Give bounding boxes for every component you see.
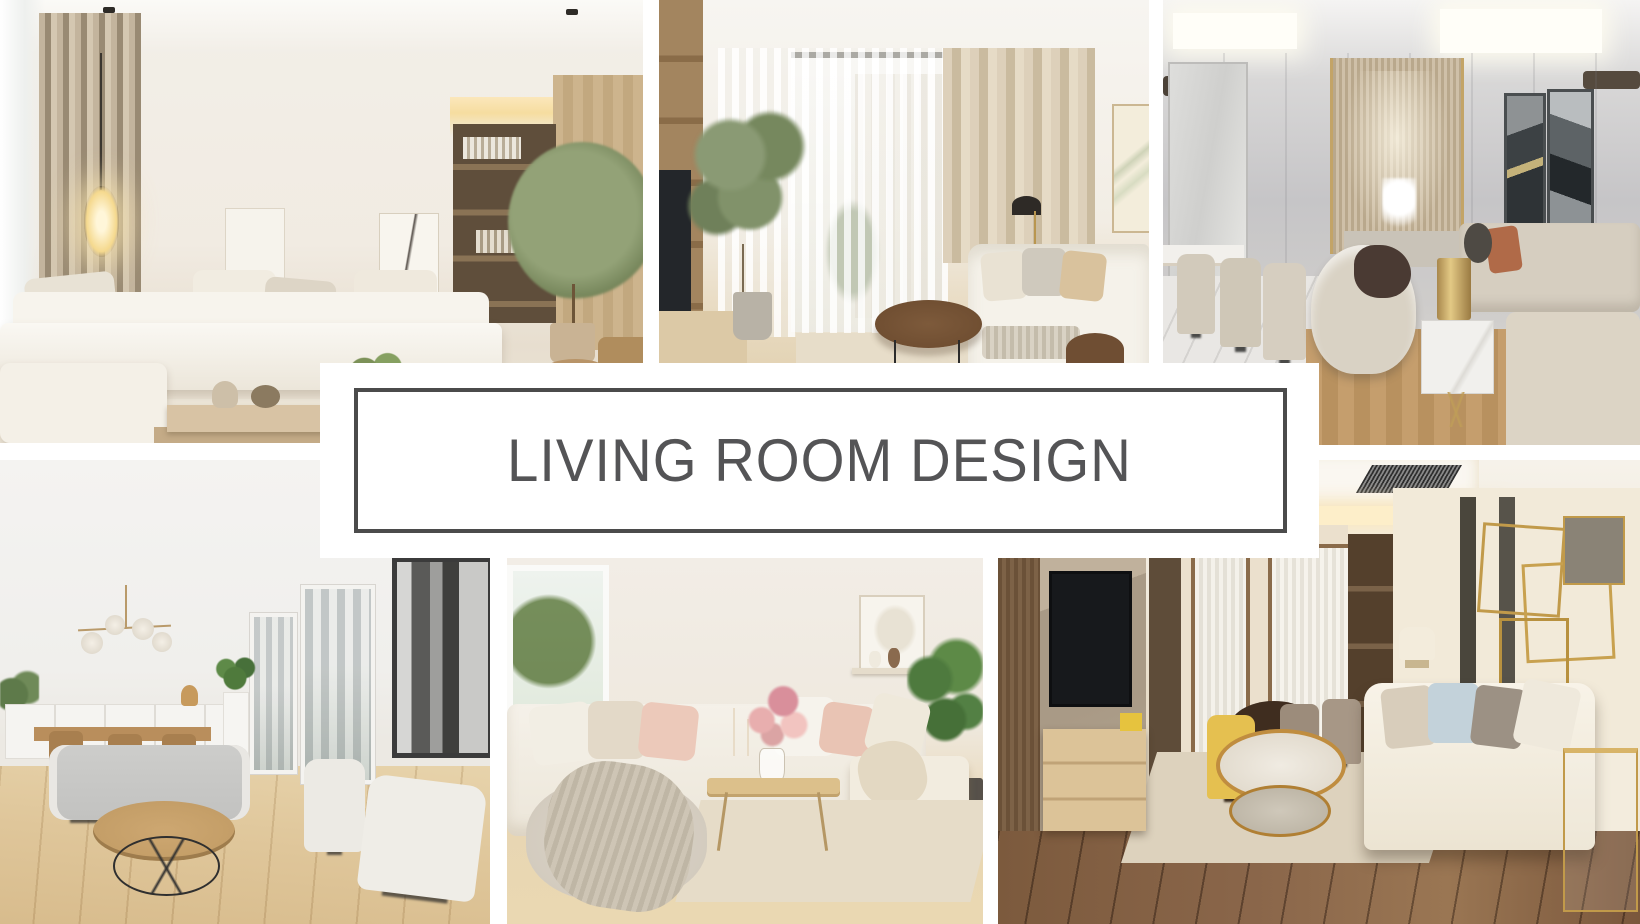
art-panel	[1504, 93, 1546, 228]
sofa-pillow	[1058, 249, 1107, 301]
coffee-table-lower-tier	[1229, 785, 1331, 837]
tree-trunk	[572, 284, 575, 328]
yellow-decor-box	[1120, 713, 1142, 732]
chandelier-globe	[81, 632, 103, 654]
tree-pot	[550, 323, 595, 363]
table-decor	[212, 381, 238, 408]
ceiling-spotlight	[566, 9, 578, 15]
window	[301, 585, 375, 783]
gold-side-table	[1563, 748, 1638, 913]
chandelier-globe	[152, 632, 172, 652]
coffee-table	[875, 300, 983, 348]
side-table	[1066, 333, 1125, 366]
shelf-vase	[869, 651, 881, 667]
title-banner: LIVING ROOM DESIGN	[320, 363, 1319, 558]
pendant-cord	[100, 53, 102, 190]
tv-screen	[1049, 571, 1132, 707]
floor-lamp-dome	[1012, 196, 1041, 215]
dining-chair	[1177, 254, 1215, 334]
indoor-tree	[508, 142, 643, 301]
table-lamp	[1399, 627, 1434, 659]
ficus-pot	[733, 292, 772, 340]
chandelier-stem	[125, 585, 127, 627]
gold-wall-art-panel	[1563, 516, 1625, 585]
city-artwork	[392, 557, 490, 757]
sofa-corner	[1506, 312, 1640, 446]
sofa-pillow-blush	[638, 702, 701, 763]
table-decor	[251, 385, 280, 407]
ficus-tree	[684, 104, 816, 274]
armchair	[304, 759, 365, 852]
dining-chair	[1263, 263, 1306, 361]
sofa-chaise	[0, 363, 167, 443]
marble-cube-table	[1421, 320, 1495, 393]
armchair	[356, 773, 487, 902]
sofa-pillow	[527, 701, 596, 767]
table-lamp	[181, 685, 198, 706]
sofa-pillow	[588, 701, 645, 760]
ceiling-cove	[1440, 9, 1602, 54]
brass-lamp	[1437, 258, 1470, 320]
wall-art	[1112, 104, 1149, 234]
candles	[733, 708, 735, 756]
collage-title: LIVING ROOM DESIGN	[507, 426, 1132, 495]
drapes	[943, 48, 1095, 263]
sculpture	[1382, 178, 1415, 236]
gold-table-legs	[1425, 392, 1487, 428]
dining-chair	[1220, 258, 1261, 347]
chandelier-globe	[132, 618, 154, 640]
gold-trim	[1330, 58, 1333, 254]
chandelier-globe	[105, 615, 125, 635]
planter-leaves	[213, 650, 257, 696]
photo-bottom-middle	[507, 558, 983, 924]
photo-top-middle	[659, 0, 1149, 370]
media-console	[1043, 729, 1146, 831]
sofa-pillow-dark	[1464, 223, 1493, 263]
shelf-vase	[888, 648, 900, 668]
ceiling-spotlight	[103, 7, 115, 13]
art-panel	[1547, 89, 1594, 233]
pendant-lamp-glow	[84, 186, 119, 257]
coffee-table-wire-base	[113, 836, 220, 896]
books	[463, 137, 521, 159]
collage-canvas: LIVING ROOM DESIGN	[0, 0, 1640, 924]
ceiling-cove	[1173, 13, 1297, 49]
